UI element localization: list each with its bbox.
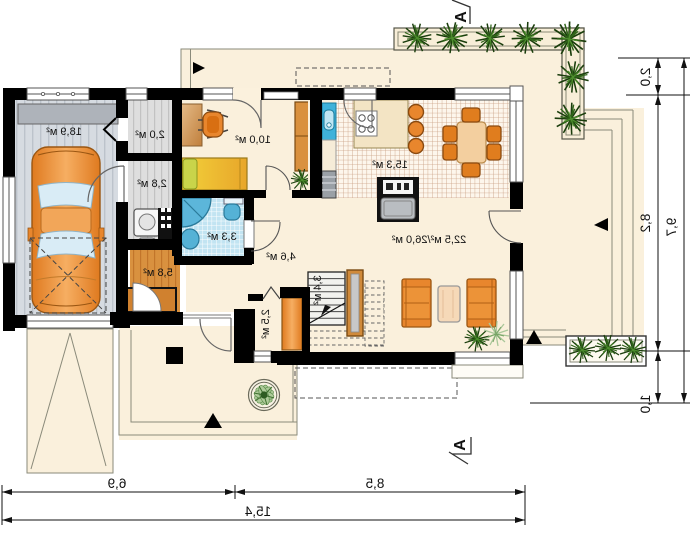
svg-text:A: A <box>453 11 470 23</box>
svg-text:2,8 м²: 2,8 м² <box>137 178 167 190</box>
svg-text:18,9 м²: 18,9 м² <box>46 126 82 138</box>
svg-text:6,9: 6,9 <box>108 476 127 491</box>
svg-text:2,5 м²: 2,5 м² <box>260 309 272 339</box>
svg-text:8,2: 8,2 <box>638 214 653 233</box>
svg-text:9,7: 9,7 <box>664 218 679 237</box>
svg-text:4,6 м²: 4,6 м² <box>266 251 296 263</box>
svg-text:15,3 м²: 15,3 м² <box>372 159 408 171</box>
svg-text:3,3 м²: 3,3 м² <box>207 231 237 243</box>
svg-text:22,5 м²/26,0 м²: 22,5 м²/26,0 м² <box>391 234 466 246</box>
svg-text:A: A <box>452 439 469 451</box>
svg-text:2,0 м²: 2,0 м² <box>135 129 165 141</box>
svg-text:8,5: 8,5 <box>366 476 385 491</box>
svg-text:3,4 м²: 3,4 м² <box>312 275 324 305</box>
svg-text:1,0: 1,0 <box>638 395 653 414</box>
svg-text:2,0: 2,0 <box>638 68 653 87</box>
svg-text:10,0 м²: 10,0 м² <box>235 134 271 146</box>
svg-text:5,8 м²: 5,8 м² <box>143 267 173 279</box>
svg-text:15,4: 15,4 <box>244 504 271 519</box>
